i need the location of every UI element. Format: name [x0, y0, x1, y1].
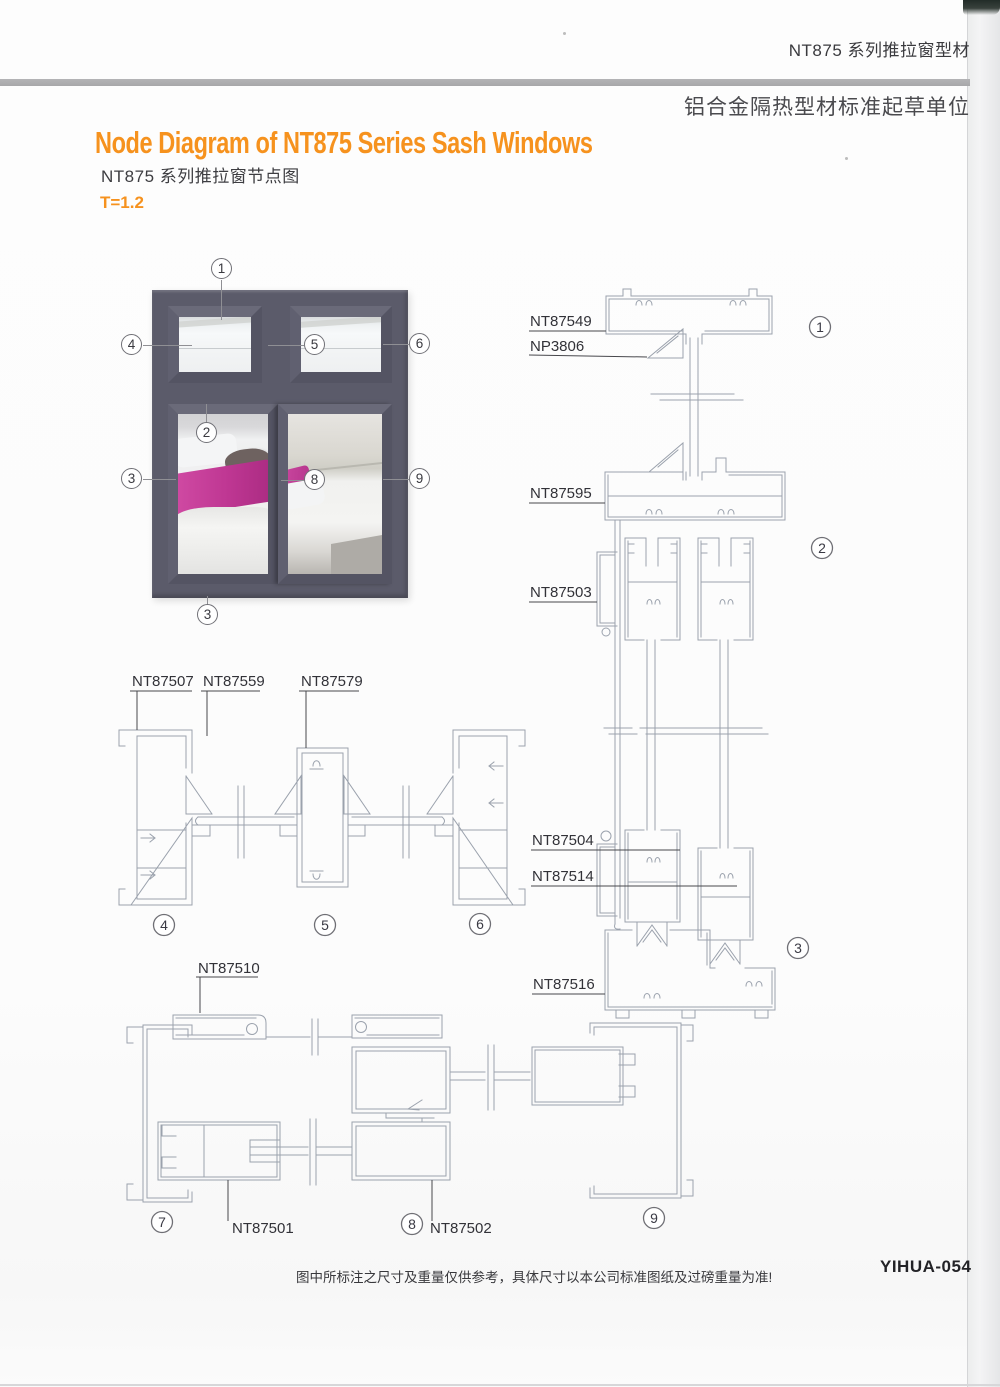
part-label-nt87503: NT87503	[530, 584, 592, 601]
scan-speck	[845, 157, 848, 160]
vertical-section-drawing: NT87549 NP3806 NT87595 NT87503 NT87504 N…	[520, 282, 850, 1022]
catalog-page: NT875 系列推拉窗型材 铝合金隔热型材标准起草单位 Node Diagram…	[0, 0, 1000, 1387]
scan-corner-artifact	[963, 0, 1000, 15]
sliding-sash-right	[278, 404, 392, 584]
node-callout-2: 2	[812, 538, 833, 559]
svg-text:5: 5	[321, 917, 329, 933]
scan-speck	[563, 32, 566, 35]
tile-floor	[331, 534, 382, 574]
leader-line-8	[281, 480, 304, 481]
svg-text:7: 7	[158, 1214, 166, 1230]
part-label-nt87501: NT87501	[232, 1220, 294, 1237]
callout-1: 1	[211, 258, 232, 279]
glass-reflection	[179, 317, 251, 327]
callout-9: 9	[409, 468, 430, 489]
leader-line-2	[206, 404, 207, 422]
top-horizontal-section-drawing: NT87507 NT87559 NT87579 4 5 6	[110, 668, 530, 948]
part-label-nt87579: NT87579	[301, 673, 363, 690]
glass-reflection-line	[179, 348, 251, 349]
part-label-nt87549: NT87549	[530, 313, 592, 330]
svg-text:4: 4	[160, 917, 168, 933]
node-callout-7: 7	[152, 1212, 173, 1233]
part-label-nt87510: NT87510	[198, 960, 260, 977]
part-label-nt87559: NT87559	[203, 673, 265, 690]
callout-3-bottom: 3	[197, 604, 218, 625]
svg-text:3: 3	[794, 940, 802, 956]
part-label-nt87502: NT87502	[430, 1220, 492, 1237]
leader-line-1	[221, 280, 222, 320]
part-label-nt87595: NT87595	[530, 485, 592, 502]
label-leader	[529, 355, 647, 357]
header-series-title: NT875 系列推拉窗型材	[0, 36, 970, 61]
svg-text:2: 2	[818, 540, 826, 556]
part-label-nt87507: NT87507	[132, 673, 194, 690]
part-label-np3806: NP3806	[530, 338, 584, 355]
leader-line-6	[383, 344, 409, 345]
page-title-zh: NT875 系列推拉窗节点图	[101, 162, 300, 187]
svg-text:1: 1	[816, 319, 824, 335]
glass-reflection	[301, 317, 381, 327]
part-label-nt87514: NT87514	[532, 868, 594, 885]
sliding-sash-left	[168, 404, 278, 584]
callout-3-left: 3	[121, 468, 142, 489]
leader-line-4	[143, 345, 192, 346]
svg-text:6: 6	[476, 916, 484, 932]
leader-line-9	[383, 479, 409, 480]
thickness-note: T=1.2	[100, 193, 144, 213]
page-title-en: Node Diagram of NT875 Series Sash Window…	[95, 126, 593, 161]
node-callout-8: 8	[402, 1214, 423, 1235]
callout-6: 6	[409, 333, 430, 354]
node-callout-9: 9	[644, 1208, 665, 1229]
header-divider	[0, 79, 970, 86]
callout-4: 4	[121, 334, 142, 355]
node-callout-4: 4	[154, 915, 175, 936]
page-bottom-edge	[0, 1384, 1000, 1386]
leader-line-3-left	[143, 479, 176, 480]
callout-5: 5	[304, 334, 325, 355]
node-callout-5: 5	[315, 915, 336, 936]
callout-2: 2	[196, 422, 217, 443]
node-callout-1: 1	[810, 317, 831, 338]
svg-text:9: 9	[650, 1210, 658, 1226]
header-org-title: 铝合金隔热型材标准起草单位	[0, 91, 970, 121]
callout-8: 8	[304, 469, 325, 490]
bedroom-photo-right	[288, 414, 382, 574]
label-leader	[299, 691, 359, 748]
footer-disclaimer: 图中所标注之尺寸及重量仅供参考，具体尺寸以本公司标准图纸及过磅重量为准!	[296, 1266, 772, 1286]
part-label-nt87504: NT87504	[532, 832, 594, 849]
node-callout-6: 6	[470, 914, 491, 935]
page-code: YIHUA-054	[880, 1257, 971, 1277]
label-leader	[196, 977, 258, 1013]
leader-line-5	[268, 345, 304, 346]
bottom-horizontal-section-drawing: NT87510 NT87501 NT87502 7 8 9	[100, 955, 780, 1245]
shag-carpet	[178, 507, 268, 574]
label-leader	[130, 691, 192, 730]
window-figure	[152, 290, 408, 598]
svg-text:8: 8	[408, 1216, 416, 1232]
bedroom-photo-left	[178, 414, 268, 574]
label-leader	[201, 691, 260, 736]
page-edge-shadow	[967, 0, 1000, 1387]
node-callout-3: 3	[788, 938, 809, 959]
